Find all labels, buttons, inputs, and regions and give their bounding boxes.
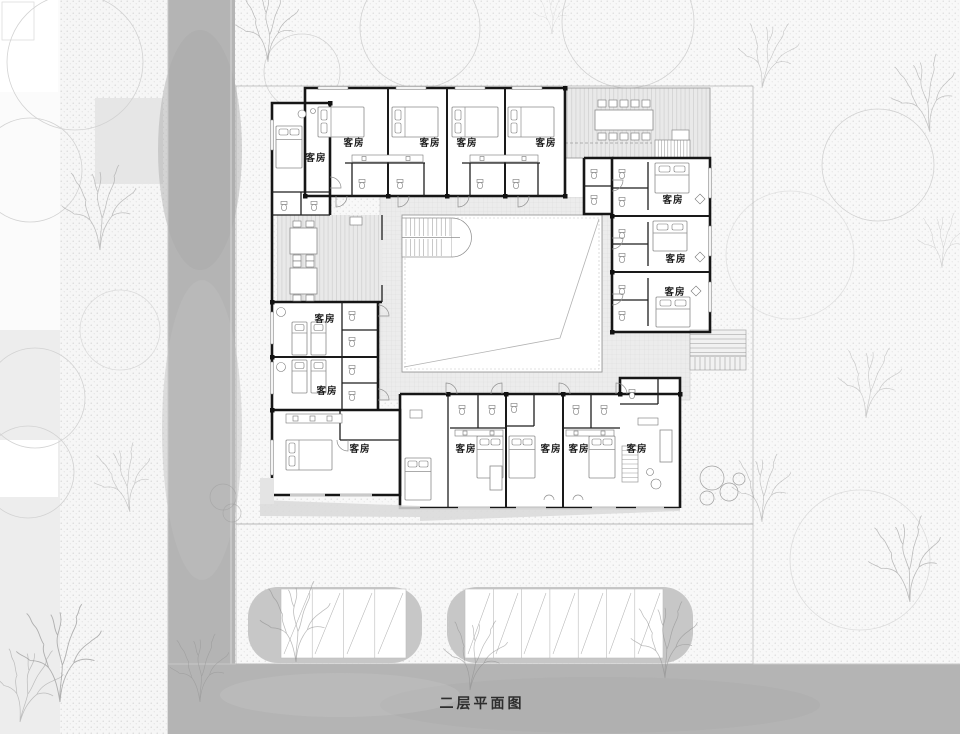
room-label: 客房 [625, 443, 647, 455]
paved-patch [95, 98, 163, 184]
road-vertical [158, 0, 242, 734]
floor-plan-page: 客房 客房 客房 客房 客房 客房 客房 客房 客房 客房 客房 客房 客房 客… [0, 0, 960, 734]
room-label: 客房 [342, 137, 364, 149]
road-horizontal [168, 664, 960, 734]
room-label: 客房 [454, 443, 476, 455]
room-label: 客房 [534, 137, 556, 149]
dining-terrace [565, 88, 710, 158]
room-label: 客房 [663, 286, 685, 298]
room-label: 客房 [313, 313, 335, 325]
courtyard-stair [402, 218, 472, 257]
room-label: 客房 [455, 137, 477, 149]
floor-plan-canvas: 客房 客房 客房 客房 客房 客房 客房 客房 客房 客房 客房 客房 客房 客… [0, 0, 960, 734]
parking-area [248, 587, 693, 663]
room-label: 客房 [348, 443, 370, 455]
plan-caption: 二层平面图 [440, 696, 525, 712]
garden-stair [690, 330, 746, 370]
dining-table [595, 110, 653, 130]
room-label: 客房 [567, 443, 589, 455]
room-label: 客房 [661, 194, 683, 206]
room-label: 客房 [664, 253, 686, 265]
room-label: 客房 [539, 443, 561, 455]
room-label: 客房 [418, 137, 440, 149]
room-label: 客房 [304, 152, 326, 164]
room-label: 客房 [315, 385, 337, 397]
